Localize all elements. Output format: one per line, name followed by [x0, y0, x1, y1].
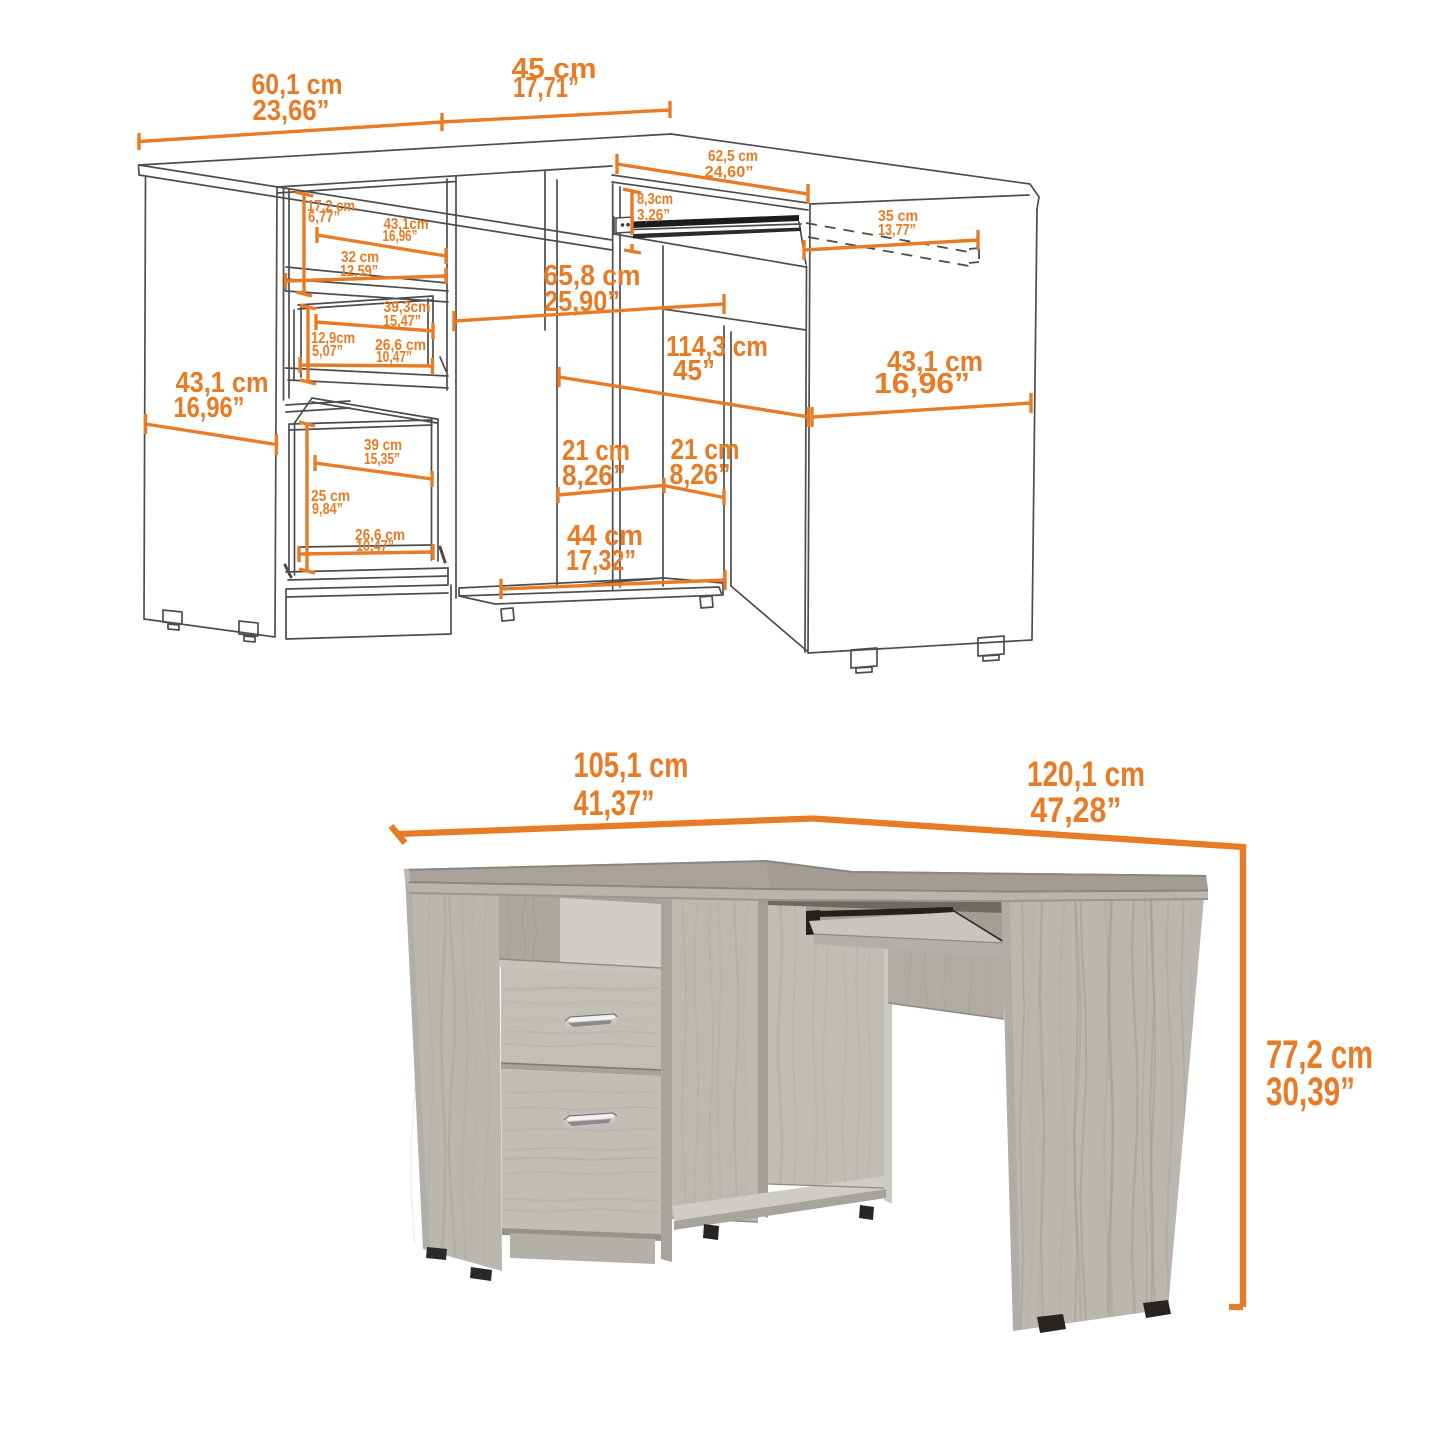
svg-text:45”: 45” — [673, 355, 715, 387]
svg-text:8,26”: 8,26” — [670, 459, 731, 491]
svg-text:16,96”: 16,96” — [383, 228, 418, 245]
svg-text:3,26”: 3,26” — [637, 207, 670, 224]
svg-text:8,3cm: 8,3cm — [637, 191, 673, 208]
svg-text:24,60”: 24,60” — [705, 164, 754, 181]
svg-text:10,47”: 10,47” — [376, 349, 412, 366]
svg-text:30,39”: 30,39” — [1266, 1070, 1355, 1114]
svg-text:17,71”: 17,71” — [513, 72, 579, 104]
svg-text:10,47”: 10,47” — [356, 538, 394, 555]
svg-text:16,96”: 16,96” — [874, 368, 970, 400]
svg-text:6,77”: 6,77” — [308, 209, 340, 226]
svg-text:120,1 cm: 120,1 cm — [1027, 755, 1145, 794]
svg-text:62,5 cm: 62,5 cm — [708, 148, 758, 165]
svg-text:16,96”: 16,96” — [174, 392, 245, 424]
svg-text:17,32”: 17,32” — [566, 545, 636, 577]
svg-text:23,66”: 23,66” — [253, 95, 330, 127]
svg-text:15,47”: 15,47” — [383, 313, 421, 330]
svg-text:13,77”: 13,77” — [878, 222, 916, 239]
svg-text:9,84”: 9,84” — [312, 501, 343, 518]
svg-text:5,07”: 5,07” — [312, 343, 343, 360]
svg-text:25,90”: 25,90” — [544, 286, 620, 318]
svg-text:105,1 cm: 105,1 cm — [574, 746, 689, 785]
svg-text:15,35”: 15,35” — [364, 451, 400, 468]
svg-text:41,37”: 41,37” — [574, 784, 655, 823]
svg-text:12,59”: 12,59” — [340, 263, 378, 280]
svg-text:47,28”: 47,28” — [1031, 791, 1122, 830]
svg-text:8,26”: 8,26” — [562, 460, 626, 492]
